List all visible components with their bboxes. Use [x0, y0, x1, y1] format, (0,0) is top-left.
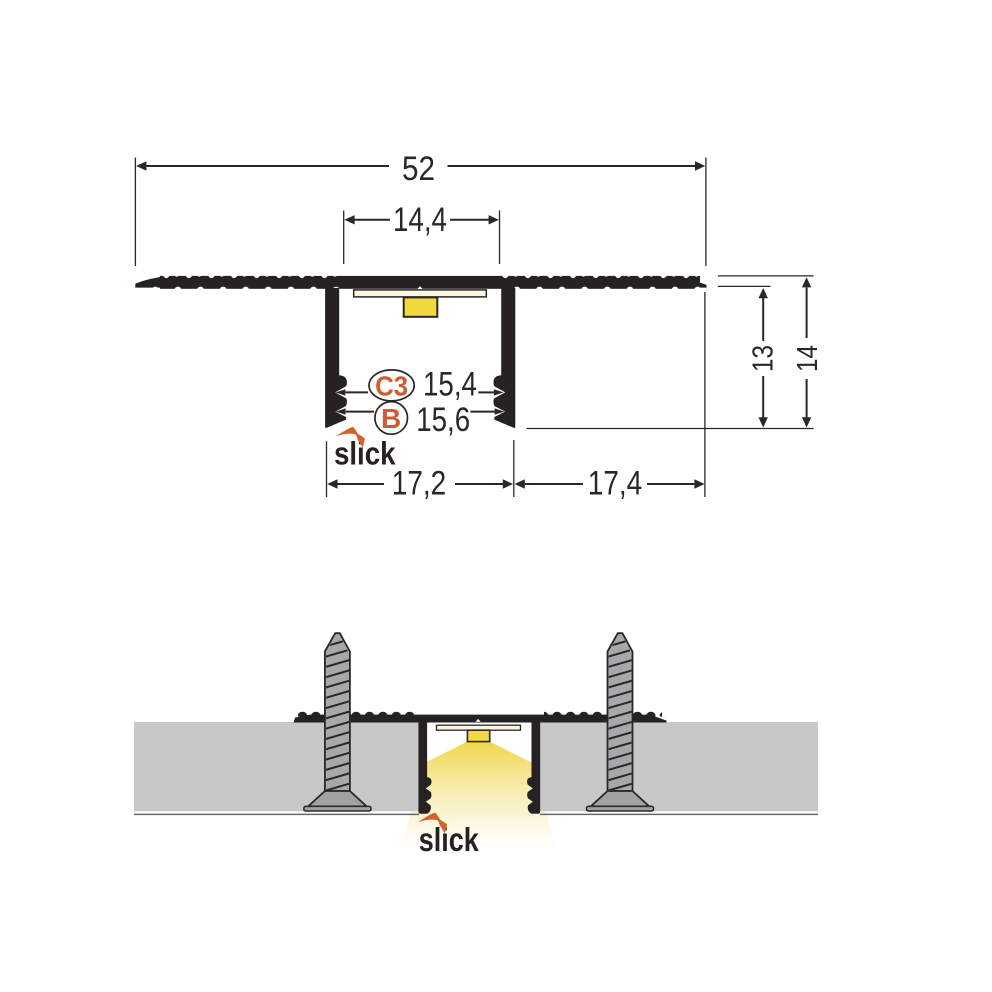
svg-text:52: 52	[402, 150, 435, 188]
svg-text:C3: C3	[375, 371, 408, 402]
svg-text:17,2: 17,2	[392, 464, 447, 502]
svg-text:14: 14	[792, 345, 824, 372]
svg-text:slick: slick	[334, 435, 396, 471]
svg-text:slick: slick	[419, 821, 480, 858]
svg-text:17,4: 17,4	[588, 464, 643, 502]
svg-text:13: 13	[748, 345, 780, 372]
svg-text:B: B	[381, 403, 401, 434]
svg-text:14,4: 14,4	[393, 201, 447, 239]
svg-text:15,6: 15,6	[416, 401, 470, 439]
svg-text:15,4: 15,4	[423, 365, 477, 403]
